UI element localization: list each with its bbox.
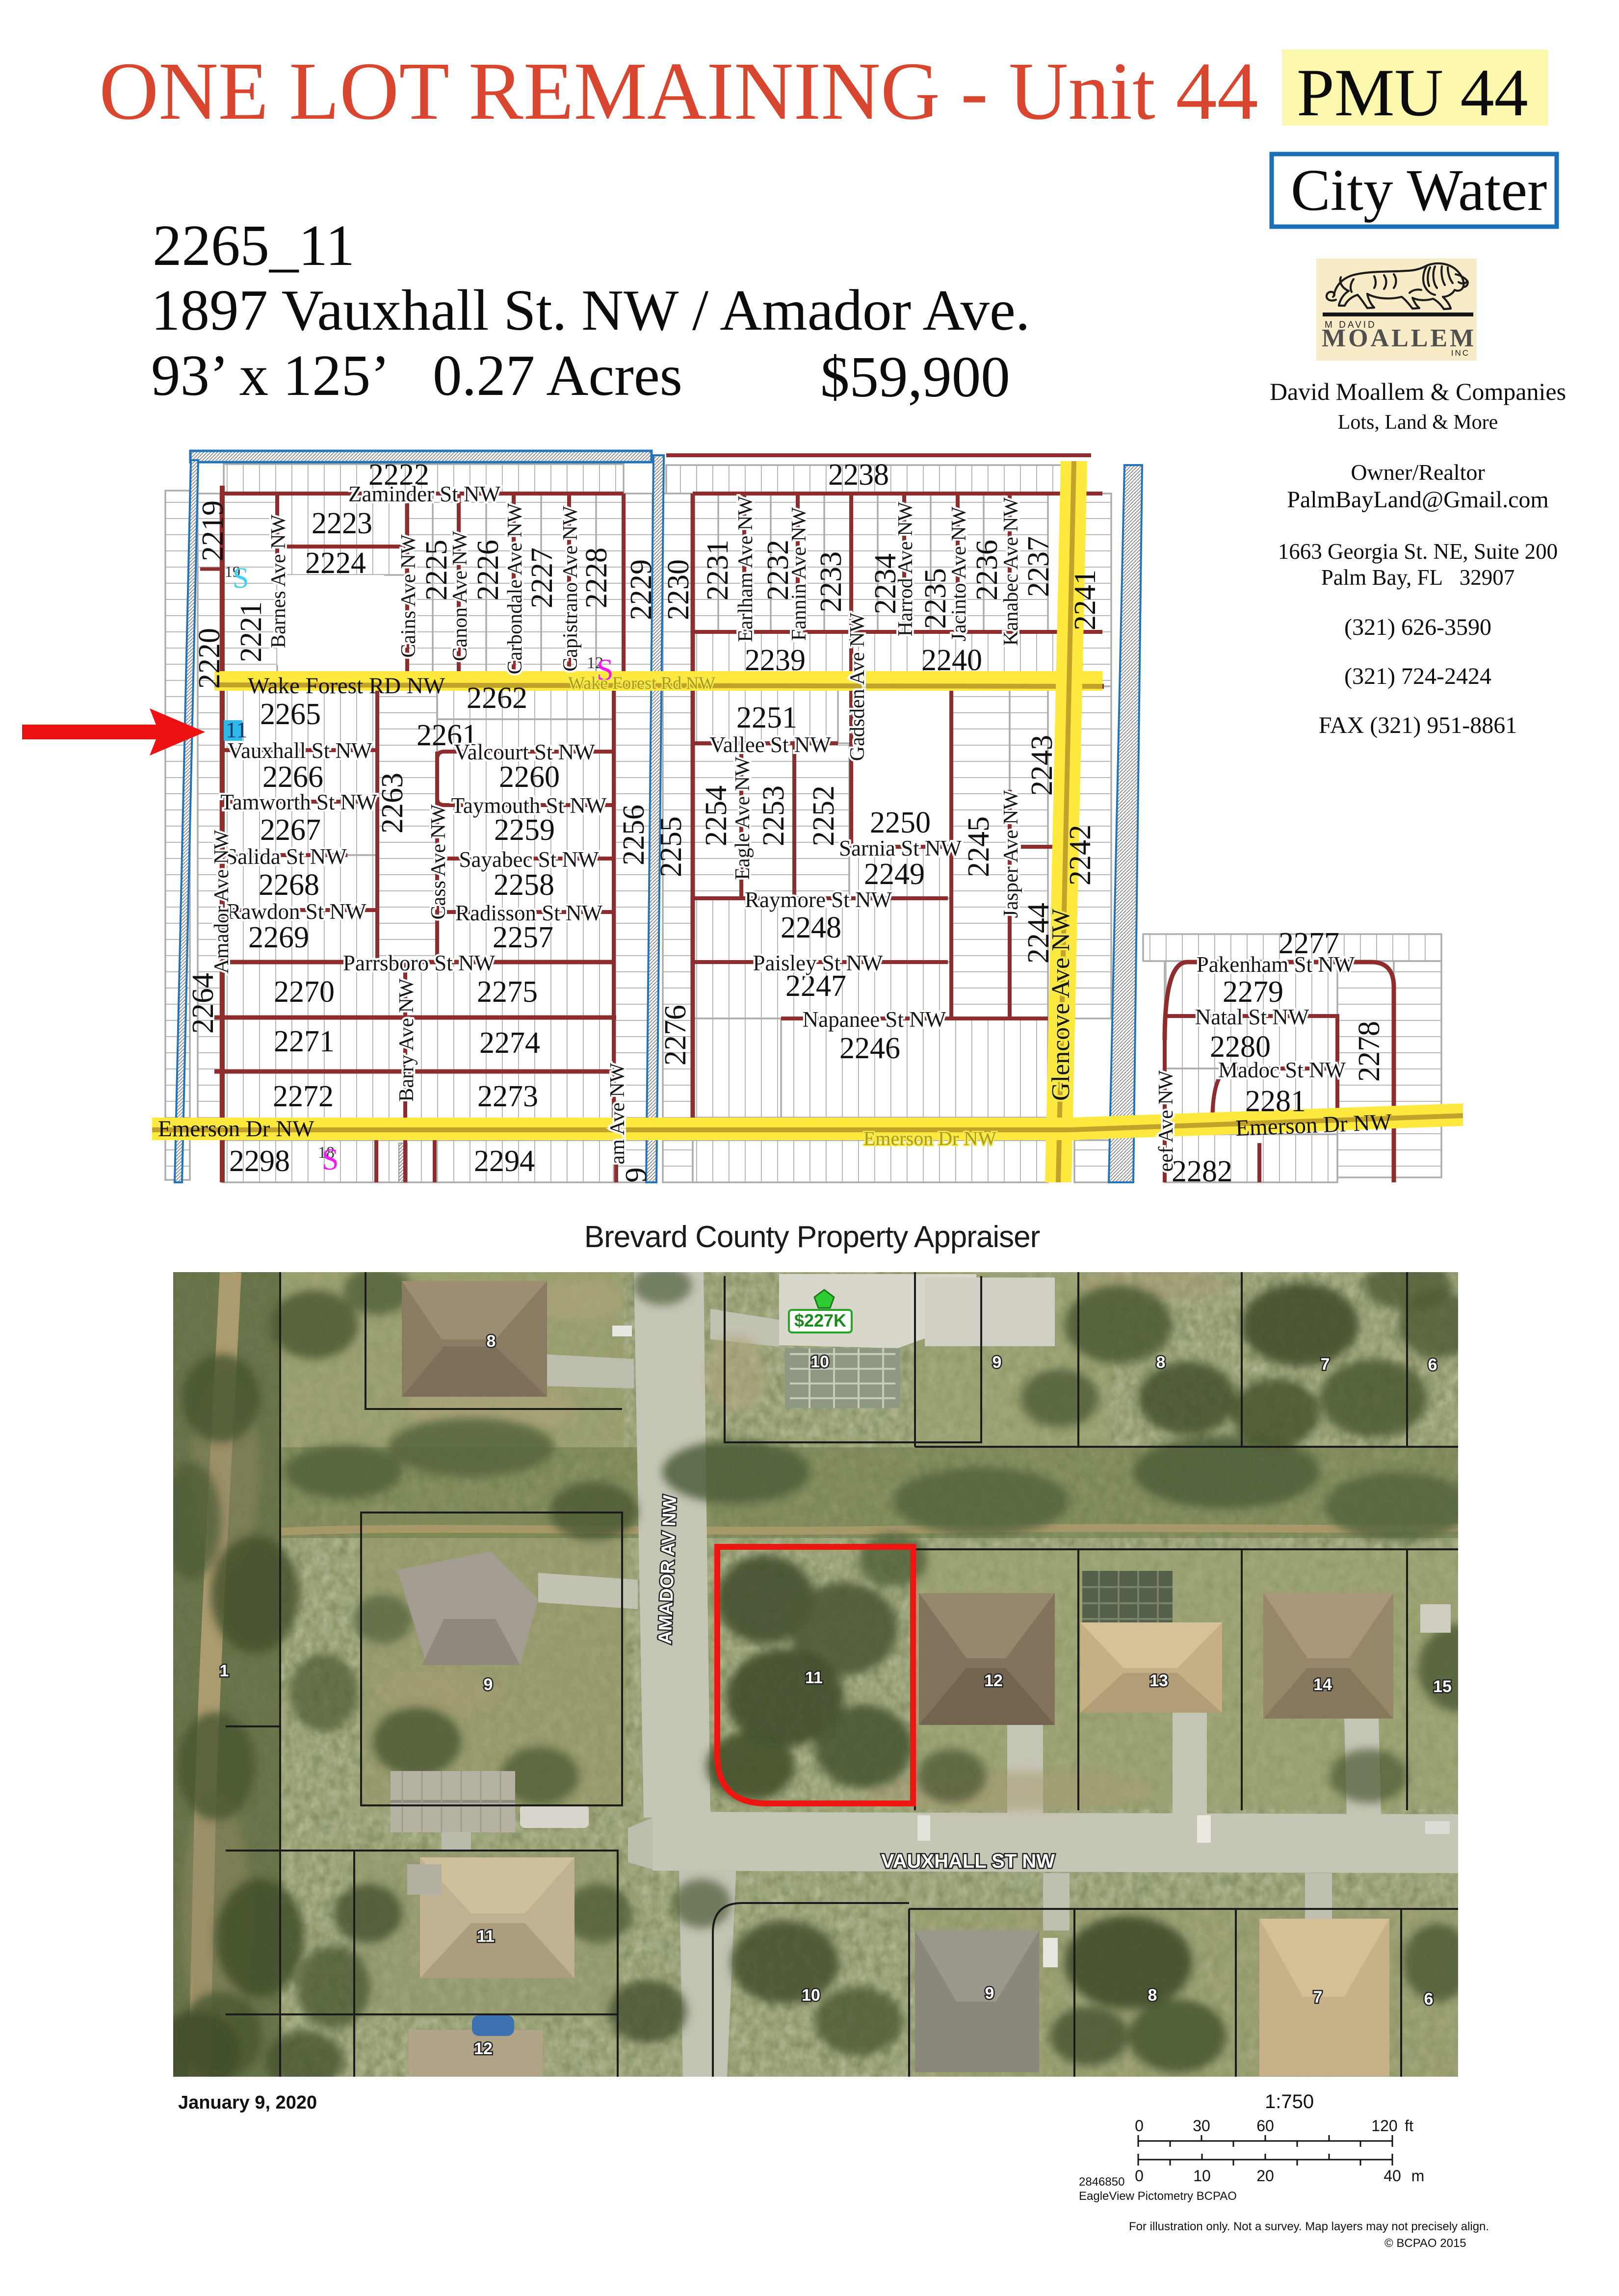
svg-text:2279: 2279	[1223, 975, 1283, 1009]
svg-text:11: 11	[477, 1927, 495, 1946]
svg-text:2274: 2274	[479, 1026, 540, 1060]
svg-text:13: 13	[1149, 1671, 1168, 1690]
svg-text:9: 9	[992, 1353, 1002, 1372]
svg-text:93’ x 125’: 93’ x 125’	[151, 343, 390, 408]
svg-text:2258: 2258	[494, 868, 554, 902]
svg-text:January 9, 2020: January 9, 2020	[178, 2092, 317, 2113]
svg-text:INC: INC	[1451, 348, 1470, 358]
svg-text:FAX (321) 951-8861: FAX (321) 951-8861	[1319, 712, 1517, 738]
svg-text:PalmBayLand@Gmail.com: PalmBayLand@Gmail.com	[1287, 487, 1548, 513]
svg-text:2273: 2273	[477, 1080, 538, 1113]
svg-text:Lots, Land & More: Lots, Land & More	[1338, 411, 1498, 434]
svg-text:14: 14	[1313, 1675, 1332, 1694]
svg-text:$59,900: $59,900	[820, 344, 1010, 409]
svg-text:Pakenham St NW: Pakenham St NW	[1197, 952, 1355, 977]
svg-text:8: 8	[1148, 1986, 1157, 2005]
svg-text:Sayabec St NW: Sayabec St NW	[459, 847, 599, 872]
svg-text:10: 10	[810, 1353, 829, 1371]
svg-text:David Moallem & Companies: David Moallem & Companies	[1270, 378, 1566, 405]
svg-text:2259: 2259	[494, 813, 555, 847]
svg-text:2223: 2223	[312, 507, 372, 540]
svg-text:Emerson Dr NW: Emerson Dr NW	[158, 1116, 314, 1142]
svg-text:2275: 2275	[477, 975, 538, 1009]
svg-text:Wake Forest RD NW: Wake Forest RD NW	[248, 673, 445, 699]
svg-text:2254: 2254	[700, 785, 733, 846]
svg-text:40: 40	[1384, 2167, 1401, 2185]
svg-text:Wake Forest Rd NW: Wake Forest Rd NW	[568, 673, 715, 693]
svg-text:2245: 2245	[962, 816, 995, 877]
svg-text:1:750: 1:750	[1265, 2091, 1314, 2113]
svg-text:2243: 2243	[1025, 735, 1059, 796]
svg-text:2251: 2251	[736, 701, 797, 734]
svg-text:Rawdon St NW: Rawdon St NW	[227, 899, 367, 924]
svg-text:m: m	[1411, 2167, 1425, 2185]
svg-text:Owner/Realtor: Owner/Realtor	[1351, 460, 1485, 485]
svg-text:Palm Bay, FL 32907: Palm Bay, FL 32907	[1321, 565, 1515, 590]
svg-text:2263: 2263	[376, 773, 409, 834]
svg-text:Barnes Ave NW: Barnes Ave NW	[267, 515, 290, 648]
svg-text:15: 15	[1433, 1677, 1452, 1696]
svg-text:30: 30	[1193, 2117, 1210, 2135]
svg-text:eef Ave NW: eef Ave NW	[1155, 1070, 1177, 1172]
svg-text:(321) 626-3590: (321) 626-3590	[1344, 614, 1491, 640]
svg-text:2236: 2236	[970, 540, 1004, 600]
svg-text:2272: 2272	[273, 1080, 334, 1113]
svg-text:60: 60	[1256, 2117, 1274, 2135]
svg-text:VAUXHALL ST NW: VAUXHALL ST NW	[881, 1851, 1055, 1872]
svg-text:0.27 Acres: 0.27 Acres	[433, 343, 682, 408]
svg-text:2249: 2249	[864, 858, 925, 891]
svg-text:2242: 2242	[1064, 825, 1097, 886]
svg-text:6: 6	[1424, 1990, 1434, 2009]
svg-text:Cains Ave NW: Cains Ave NW	[397, 534, 420, 658]
svg-text:2264: 2264	[186, 973, 220, 1034]
svg-text:Harrod Ave NW: Harrod Ave NW	[894, 501, 917, 636]
svg-text:1663 Georgia St. NE, Suite 200: 1663 Georgia St. NE, Suite 200	[1278, 539, 1558, 564]
svg-text:EagleView Pictometry BCPAO: EagleView Pictometry BCPAO	[1079, 2190, 1237, 2203]
svg-text:2224: 2224	[305, 547, 366, 580]
svg-text:2278: 2278	[1353, 1021, 1386, 1082]
svg-text:Earlham Ave NW: Earlham Ave NW	[734, 496, 757, 642]
svg-text:2233: 2233	[814, 551, 848, 612]
svg-text:© BCPAO 2015: © BCPAO 2015	[1384, 2237, 1466, 2250]
svg-text:7: 7	[1313, 1988, 1323, 2007]
svg-text:1897 Vauxhall St. NW / Amador: 1897 Vauxhall St. NW / Amador Ave.	[151, 278, 1030, 342]
svg-text:2239: 2239	[745, 644, 806, 677]
svg-text:2246: 2246	[839, 1032, 900, 1065]
svg-text:Vallee St NW: Vallee St NW	[709, 732, 831, 757]
svg-text:2241: 2241	[1069, 570, 1102, 630]
svg-text:2220: 2220	[193, 628, 226, 689]
svg-text:20: 20	[1256, 2167, 1274, 2185]
svg-text:2226: 2226	[471, 540, 505, 600]
svg-text:Gadsden Ave NW: Gadsden Ave NW	[846, 612, 869, 761]
svg-text:Paisley St NW: Paisley St NW	[753, 951, 884, 975]
svg-text:2256: 2256	[617, 805, 651, 865]
svg-text:Jacinto Ave NW: Jacinto Ave NW	[948, 506, 970, 641]
svg-text:For illustration only. Not a s: For illustration only. Not a survey. Map…	[1129, 2220, 1489, 2233]
svg-text:2270: 2270	[274, 975, 335, 1009]
svg-text:2229: 2229	[625, 559, 658, 620]
svg-text:Tamworth St NW: Tamworth St NW	[220, 790, 377, 814]
svg-text:12: 12	[474, 2039, 493, 2058]
svg-text:S: S	[322, 1143, 339, 1176]
svg-text:2276: 2276	[659, 1005, 692, 1066]
svg-text:2255: 2255	[654, 816, 688, 877]
svg-text:2282: 2282	[1172, 1155, 1232, 1188]
svg-text:2237: 2237	[1022, 536, 1055, 597]
svg-text:Eagle Ave NW: Eagle Ave NW	[731, 757, 754, 880]
svg-text:Barry Ave NW: Barry Ave NW	[395, 978, 418, 1101]
svg-text:7: 7	[1321, 1355, 1330, 1374]
svg-text:Natal St NW: Natal St NW	[1195, 1005, 1309, 1029]
svg-text:2271: 2271	[274, 1025, 335, 1058]
svg-text:9: 9	[620, 1168, 653, 1183]
svg-text:2266: 2266	[262, 760, 323, 794]
svg-text:2268: 2268	[259, 868, 319, 902]
svg-text:2253: 2253	[757, 785, 790, 846]
svg-text:120: 120	[1371, 2117, 1397, 2135]
svg-text:11: 11	[805, 1669, 823, 1687]
svg-text:2230: 2230	[662, 559, 695, 620]
svg-text:$227K: $227K	[794, 1310, 846, 1331]
svg-text:2248: 2248	[781, 911, 841, 944]
svg-text:2219: 2219	[196, 500, 230, 561]
svg-text:Amador Ave NW: Amador Ave NW	[210, 830, 233, 973]
svg-text:8: 8	[1156, 1353, 1166, 1372]
svg-text:6: 6	[1428, 1356, 1437, 1374]
svg-text:2260: 2260	[499, 760, 560, 794]
svg-text:1: 1	[220, 1662, 229, 1680]
svg-text:Radisson St NW: Radisson St NW	[455, 901, 603, 925]
svg-text:2228: 2228	[580, 548, 613, 608]
svg-text:0: 0	[1135, 2117, 1144, 2135]
svg-text:2269: 2269	[248, 921, 309, 954]
svg-text:2235: 2235	[919, 568, 952, 629]
svg-text:2225: 2225	[420, 540, 453, 600]
svg-text:2257: 2257	[493, 921, 553, 954]
svg-text:9: 9	[985, 1984, 994, 2003]
svg-text:8: 8	[487, 1332, 496, 1351]
svg-text:Valcourt St NW: Valcourt St NW	[454, 740, 595, 764]
svg-text:Parrsboro St NW: Parrsboro St NW	[343, 951, 495, 975]
svg-text:2298: 2298	[229, 1145, 290, 1178]
svg-text:2262: 2262	[467, 681, 527, 715]
svg-text:Canon Ave NW: Canon Ave NW	[449, 531, 471, 661]
svg-text:Carbondale Ave NW: Carbondale Ave NW	[504, 503, 526, 674]
svg-text:(321) 724-2424: (321) 724-2424	[1344, 663, 1491, 689]
svg-text:Taymouth St NW: Taymouth St NW	[451, 793, 607, 818]
svg-text:am Ave NW: am Ave NW	[606, 1063, 629, 1164]
svg-text:Napanee St NW: Napanee St NW	[803, 1007, 946, 1032]
svg-text:2252: 2252	[807, 785, 840, 846]
svg-text:Vauxhall St NW: Vauxhall St NW	[228, 738, 372, 763]
svg-text:PMU 44: PMU 44	[1297, 55, 1528, 130]
svg-text:Glencove Ave NW: Glencove Ave NW	[1047, 909, 1075, 1101]
svg-text:Sarnia St NW: Sarnia St NW	[839, 836, 962, 861]
svg-text:10: 10	[802, 1986, 820, 2005]
svg-text:0: 0	[1135, 2167, 1144, 2185]
svg-text:Raymore St NW: Raymore St NW	[745, 887, 892, 912]
svg-text:S: S	[233, 562, 249, 594]
svg-text:2265_11: 2265_11	[153, 213, 355, 278]
svg-text:2846850: 2846850	[1079, 2175, 1124, 2189]
svg-text:Brevard County Property Apprai: Brevard County Property Appraiser	[584, 1220, 1040, 1254]
svg-text:Zaminder St NW: Zaminder St NW	[348, 482, 500, 506]
svg-text:City Water: City Water	[1291, 157, 1547, 223]
svg-text:2265: 2265	[260, 698, 321, 731]
svg-text:2221: 2221	[235, 601, 268, 662]
svg-text:Jasper Ave NW: Jasper Ave NW	[1000, 790, 1022, 918]
svg-text:ONE LOT REMAINING - Unit 44: ONE LOT REMAINING - Unit 44	[99, 46, 1258, 137]
svg-text:10: 10	[1193, 2167, 1211, 2185]
svg-text:2227: 2227	[525, 548, 559, 608]
svg-text:2240: 2240	[921, 644, 982, 677]
svg-text:2250: 2250	[870, 806, 931, 839]
svg-text:Fannin Ave NW: Fannin Ave NW	[788, 507, 810, 641]
svg-text:2294: 2294	[474, 1145, 535, 1178]
svg-text:Capistrano Ave NW: Capistrano Ave NW	[559, 506, 582, 672]
svg-text:2238: 2238	[828, 458, 889, 492]
svg-text:2267: 2267	[260, 813, 321, 847]
svg-text:Madoc St NW: Madoc St NW	[1218, 1058, 1346, 1082]
svg-text:9: 9	[484, 1675, 493, 1694]
svg-text:Kanabec Ave NW: Kanabec Ave NW	[1000, 497, 1022, 646]
svg-text:12: 12	[984, 1671, 1003, 1690]
svg-text:Salida St NW: Salida St NW	[225, 844, 347, 869]
svg-text:2231: 2231	[701, 540, 734, 600]
svg-text:ft: ft	[1405, 2117, 1413, 2135]
svg-text:Cass Ave NW: Cass Ave NW	[427, 804, 450, 919]
svg-text:Emerson Dr NW: Emerson Dr NW	[863, 1127, 996, 1149]
